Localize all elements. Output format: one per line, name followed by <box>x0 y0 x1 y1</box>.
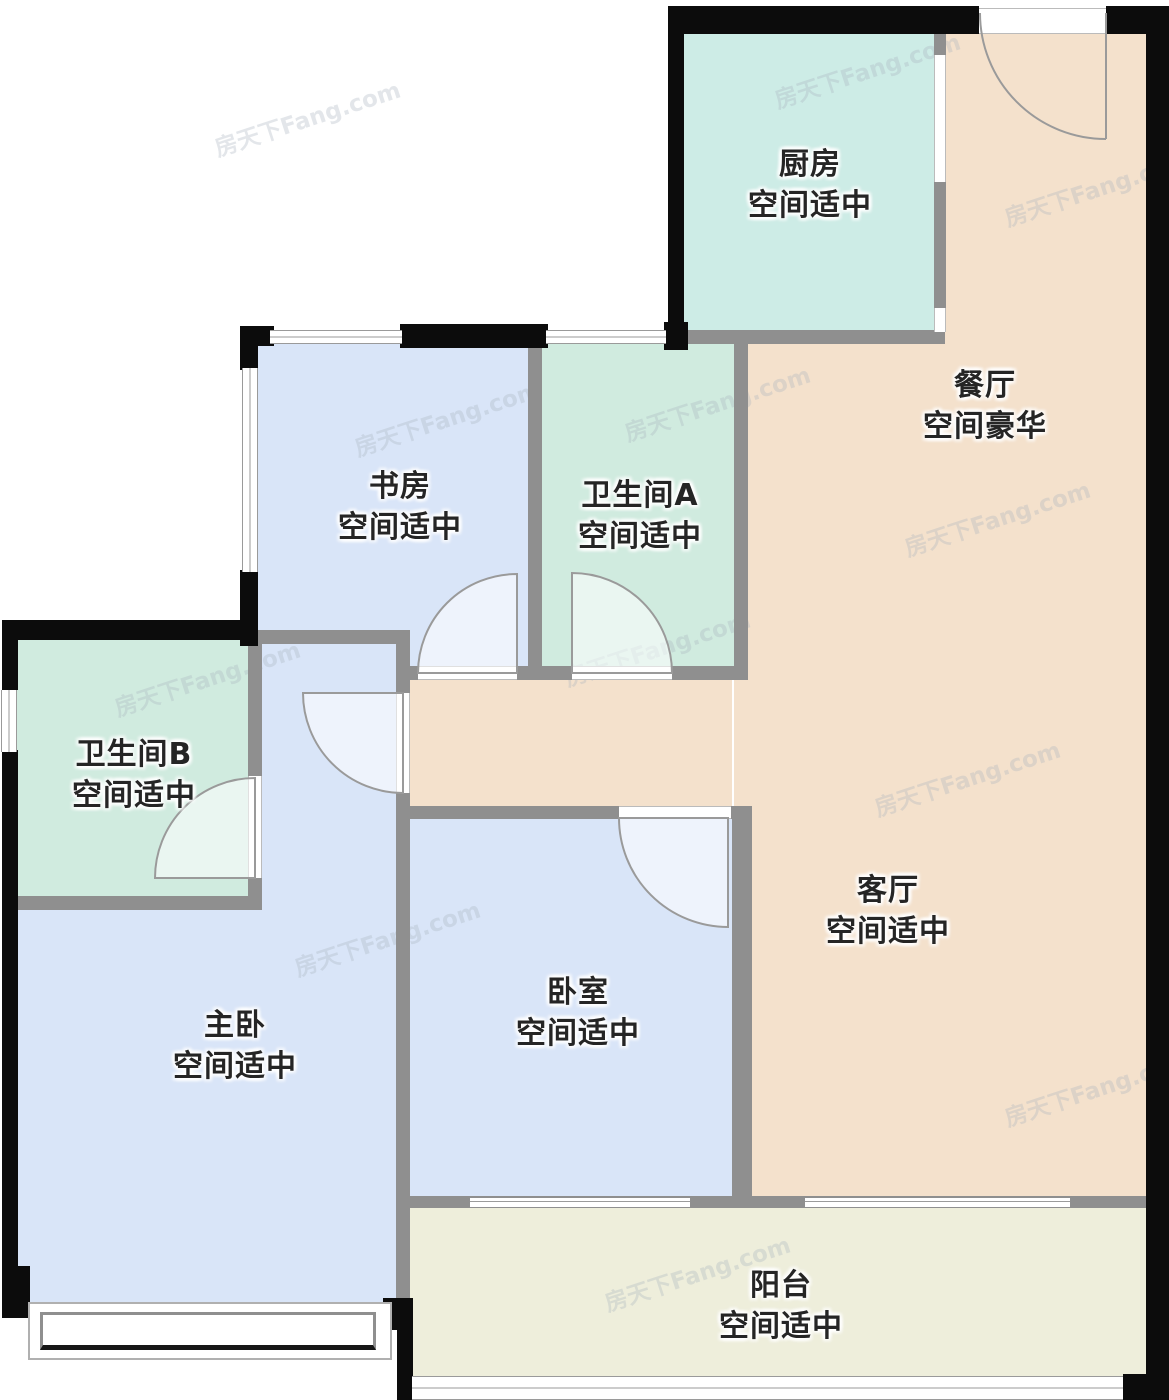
room-grade: 空间适中 <box>719 1306 843 1347</box>
room-name: 书房 <box>338 466 462 507</box>
wall-segment <box>676 330 945 344</box>
room-master-corridor-area <box>255 644 400 905</box>
door-opening <box>572 666 672 680</box>
room-name: 卫生间B <box>72 734 196 775</box>
room-grade: 空间适中 <box>578 516 702 557</box>
wall-segment <box>2 1266 30 1318</box>
watermark: 房天下Fang.com <box>209 71 404 163</box>
sliding-door <box>805 1198 1070 1207</box>
floor-plan: 房天下Fang.com 房天下Fang.com 房天下Fang.com 房天下F… <box>0 0 1169 1400</box>
bay-window-frame <box>40 1312 376 1350</box>
window <box>412 1376 1123 1400</box>
window <box>270 330 402 344</box>
wall-segment <box>1123 1374 1169 1400</box>
room-name: 主卧 <box>173 1005 297 1046</box>
wall-segment <box>2 896 262 910</box>
wall-segment <box>400 324 548 348</box>
room-name: 阳台 <box>719 1265 843 1306</box>
room-grade: 空间豪华 <box>923 406 1047 447</box>
room-grade: 空间适中 <box>72 775 196 816</box>
room-master-bedroom-area <box>18 896 400 1305</box>
room-grade: 空间适中 <box>173 1046 297 1087</box>
door-opening <box>979 8 1106 34</box>
bay-window <box>28 1302 392 1360</box>
window <box>1 690 17 752</box>
room-label-bathroom-a: 卫生间A 空间适中 <box>578 475 702 557</box>
hallway-area <box>410 680 732 806</box>
room-label-study: 书房 空间适中 <box>338 466 462 548</box>
room-label-bathroom-b: 卫生间B 空间适中 <box>72 734 196 816</box>
room-grade: 空间适中 <box>516 1013 640 1054</box>
door-opening <box>934 55 946 182</box>
wall-segment <box>664 322 688 350</box>
room-dining-living-area <box>734 344 1146 1197</box>
room-grade: 空间适中 <box>748 185 872 226</box>
room-label-bedroom: 卧室 空间适中 <box>516 972 640 1054</box>
wall-segment <box>397 1318 413 1400</box>
door-opening <box>418 666 517 680</box>
room-grade: 空间适中 <box>826 911 950 952</box>
wall-segment <box>732 806 752 1208</box>
wall-segment <box>248 630 410 644</box>
door-opening <box>619 806 731 819</box>
room-name: 厨房 <box>748 144 872 185</box>
door-opening <box>934 308 946 332</box>
wall-segment <box>240 326 258 370</box>
wall-segment <box>2 620 252 640</box>
window <box>242 368 258 572</box>
room-label-kitchen: 厨房 空间适中 <box>748 144 872 226</box>
room-name: 卧室 <box>516 972 640 1013</box>
room-grade: 空间适中 <box>338 507 462 548</box>
wall-segment <box>528 344 542 680</box>
wall-segment <box>2 636 18 690</box>
room-name: 卫生间A <box>578 475 702 516</box>
wall-segment <box>734 344 748 680</box>
room-label-balcony: 阳台 空间适中 <box>719 1265 843 1347</box>
window <box>546 330 666 344</box>
door-opening <box>396 693 410 793</box>
room-label-living-room: 客厅 空间适中 <box>826 870 950 952</box>
door-opening <box>248 776 262 878</box>
room-name: 客厅 <box>826 870 950 911</box>
room-name: 餐厅 <box>923 365 1047 406</box>
wall-segment <box>668 6 684 350</box>
room-label-dining: 餐厅 空间豪华 <box>923 365 1047 447</box>
room-label-master-bedroom: 主卧 空间适中 <box>173 1005 297 1087</box>
sliding-door <box>470 1198 690 1207</box>
wall-segment <box>1146 6 1169 1400</box>
room-dining-area <box>945 34 1146 344</box>
wall-segment <box>2 750 18 1312</box>
wall-segment <box>668 6 979 34</box>
